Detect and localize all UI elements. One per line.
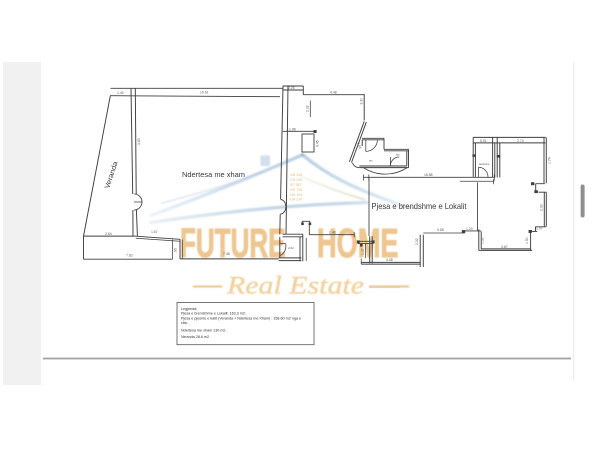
svg-text:AB 123: AB 123: [290, 173, 302, 177]
svg-text:2.02: 2.02: [288, 246, 294, 250]
svg-text:Real Estate: Real Estate: [226, 273, 364, 300]
svg-text:1.07: 1.07: [536, 226, 543, 230]
svg-text:wc: wc: [396, 153, 400, 157]
svg-text:1.40: 1.40: [117, 91, 124, 95]
svg-text:7.38: 7.38: [223, 252, 230, 256]
svg-text:EF 567: EF 567: [290, 183, 302, 187]
svg-text:2.32: 2.32: [306, 105, 310, 112]
svg-text:LM 234: LM 234: [290, 198, 302, 202]
svg-text:wc: wc: [369, 159, 373, 163]
svg-text:1.20: 1.20: [466, 227, 473, 231]
svg-text:.95: .95: [174, 248, 178, 253]
svg-text:Pjesa e brendshme e Lokalit: Pjesa e brendshme e Lokalit: [372, 202, 468, 211]
svg-text:1.67: 1.67: [151, 230, 158, 234]
svg-text:Legjenda:: Legjenda:: [181, 307, 197, 311]
svg-text:2.48: 2.48: [329, 231, 336, 235]
svg-text:2.64: 2.64: [105, 232, 112, 236]
svg-text:1.92: 1.92: [481, 237, 485, 244]
svg-text:4.48: 4.48: [330, 91, 337, 95]
svg-text:2.25: 2.25: [288, 86, 295, 90]
svg-text:3.58: 3.58: [437, 228, 444, 232]
svg-text:Ndertesa me xham: Ndertesa me xham: [182, 170, 245, 179]
svg-text:Ndertesa me xham 130 m2.: Ndertesa me xham 130 m2.: [181, 328, 227, 332]
svg-text:1.74: 1.74: [548, 157, 552, 164]
svg-text:1.37: 1.37: [361, 248, 365, 255]
svg-text:GH 789: GH 789: [290, 188, 302, 192]
svg-text:lavatrice: lavatrice: [479, 162, 490, 166]
svg-text:5.01: 5.01: [480, 139, 487, 143]
svg-text:2.33: 2.33: [540, 204, 544, 211]
svg-text:3.67: 3.67: [501, 245, 508, 249]
svg-text:10.61: 10.61: [200, 90, 209, 94]
svg-text:3.30: 3.30: [360, 98, 364, 105]
svg-text:Pjesa e pjesme e katit (Verand: Pjesa e pjesme e katit (Veranda + Nderte…: [181, 316, 301, 320]
svg-text:cila:: cila:: [181, 321, 188, 325]
svg-text:Pjesa e brendshme e Lokalit: 1: Pjesa e brendshme e Lokalit: 163,3 m2.: [181, 312, 246, 316]
svg-text:CD 345: CD 345: [290, 178, 302, 182]
svg-text:IJK 901: IJK 901: [290, 193, 303, 197]
svg-text:Veranda 28.6 m2.: Veranda 28.6 m2.: [181, 335, 210, 339]
svg-text:9.45: 9.45: [316, 140, 320, 147]
svg-text:3.83: 3.83: [137, 138, 141, 145]
svg-text:2.74: 2.74: [517, 139, 524, 143]
svg-text:1.90: 1.90: [525, 237, 529, 244]
svg-text:7.82: 7.82: [126, 254, 133, 258]
svg-text:4.48: 4.48: [386, 258, 393, 262]
svg-text:18.88: 18.88: [424, 173, 433, 177]
svg-text:1.98: 1.98: [289, 128, 296, 132]
svg-text:2.32: 2.32: [415, 238, 419, 245]
